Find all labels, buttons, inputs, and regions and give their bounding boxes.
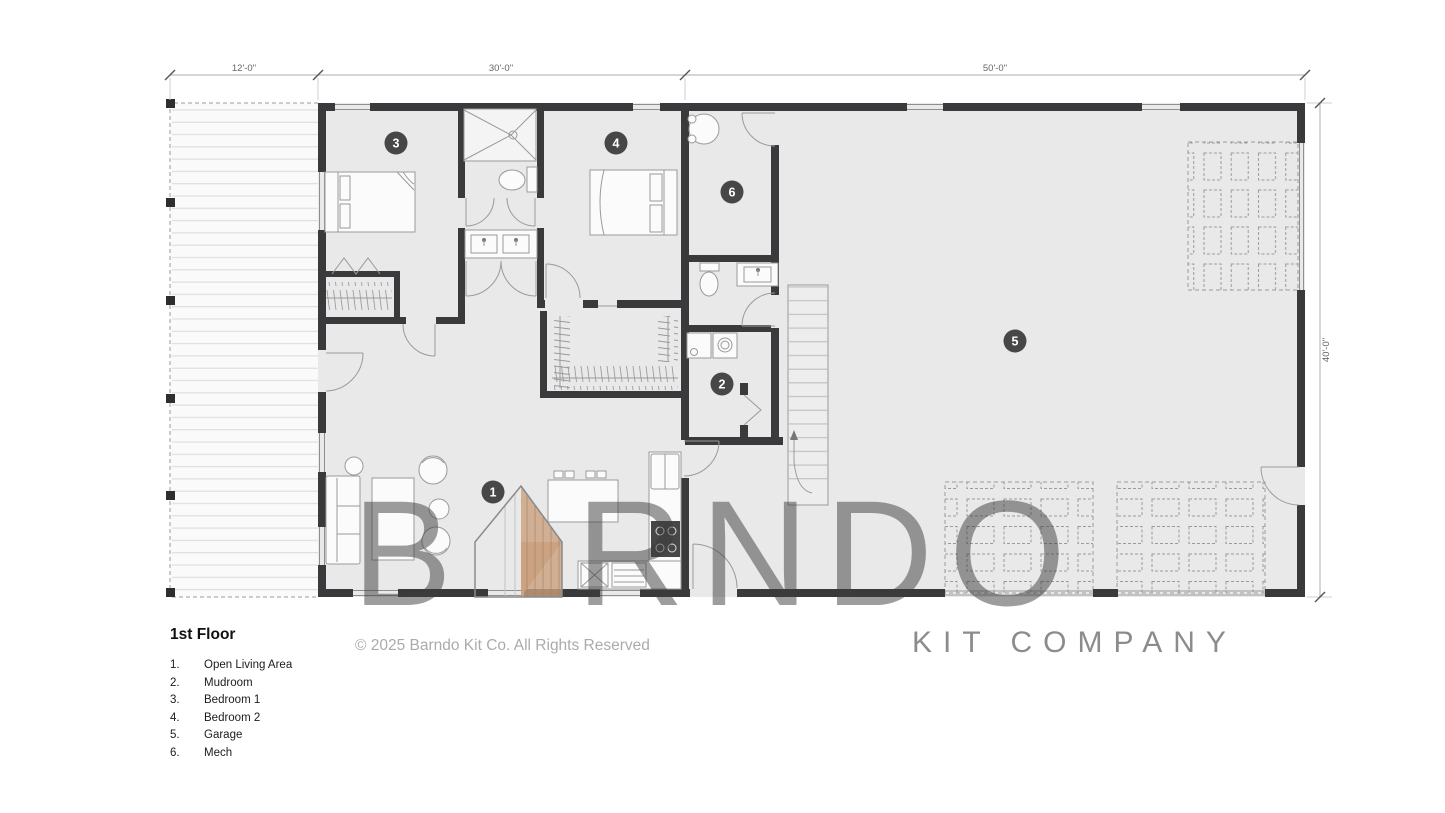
double-vanity [465, 230, 537, 258]
kitchen-counter-south [578, 561, 681, 589]
dimension-right: 40'-0" [1307, 98, 1332, 602]
legend-num: 1. [170, 657, 204, 675]
brand-subtitle: KIT COMPANY [912, 626, 1237, 660]
svg-text:1: 1 [490, 486, 497, 500]
porch-deck-boards [172, 104, 318, 596]
bedroom-2-furniture [590, 170, 677, 235]
armchair-2 [422, 527, 450, 555]
legend-item-garage: 5. Garage [170, 727, 292, 745]
dim-porch-width: 12'-0" [232, 63, 256, 74]
legend-item-mech: 6. Mech [170, 745, 292, 763]
sink [737, 263, 778, 286]
porch [166, 99, 318, 597]
legend-num: 4. [170, 710, 204, 728]
mech-room-fixtures [688, 114, 719, 144]
legend-label: Bedroom 1 [204, 692, 260, 710]
coffee-table [372, 478, 414, 560]
stairs [788, 285, 828, 505]
svg-text:4: 4 [613, 137, 620, 151]
legend-num: 2. [170, 675, 204, 693]
side-table-2 [429, 499, 449, 519]
dim-garage-width: 50'-0" [983, 63, 1007, 74]
copyright-text: © 2025 Barndo Kit Co. All Rights Reserve… [355, 637, 650, 655]
legend-num: 6. [170, 745, 204, 763]
room-marker-4: 4 [605, 132, 628, 155]
legend-label: Garage [204, 727, 242, 745]
legend-item-bedroom-1: 3. Bedroom 1 [170, 692, 292, 710]
svg-text:5: 5 [1012, 335, 1019, 349]
floor-plan-sheet: 1 2 3 4 5 6 12'-0" 30'-0" 50'-0" 40'-0" … [0, 0, 1445, 813]
legend-num: 5. [170, 727, 204, 745]
dryer [687, 333, 711, 358]
floor-title: 1st Floor [170, 626, 292, 644]
legend-item-open-living: 1. Open Living Area [170, 657, 292, 675]
svg-text:2: 2 [719, 378, 726, 392]
shower [464, 109, 536, 161]
sofa [326, 476, 360, 564]
svg-text:3: 3 [393, 137, 400, 151]
room-marker-3: 3 [385, 132, 408, 155]
range [651, 521, 680, 557]
legend-item-mudroom: 2. Mudroom [170, 675, 292, 693]
room-marker-1: 1 [482, 481, 505, 504]
garage-door-panel-right [1117, 482, 1265, 595]
dim-depth: 40'-0" [1321, 338, 1332, 362]
toilet [700, 263, 719, 296]
side-table [345, 457, 363, 475]
dim-house-width: 30'-0" [489, 63, 513, 74]
armchair [419, 456, 447, 484]
legend-num: 3. [170, 692, 204, 710]
room-marker-5: 5 [1004, 330, 1027, 353]
plan-legend: 1st Floor 1. Open Living Area 2. Mudroom… [170, 626, 292, 763]
dimension-top: 12'-0" 30'-0" 50'-0" [165, 63, 1310, 100]
garage-storage-grid [1188, 142, 1298, 290]
svg-text:6: 6 [729, 186, 736, 200]
room-marker-2: 2 [711, 373, 734, 396]
garage-door-panel-left [945, 482, 1093, 595]
washer [713, 333, 737, 358]
legend-label: Bedroom 2 [204, 710, 260, 728]
legend-item-bedroom-2: 4. Bedroom 2 [170, 710, 292, 728]
legend-label: Mudroom [204, 675, 253, 693]
legend-label: Mech [204, 745, 232, 763]
legend-label: Open Living Area [204, 657, 292, 675]
room-marker-6: 6 [721, 181, 744, 204]
